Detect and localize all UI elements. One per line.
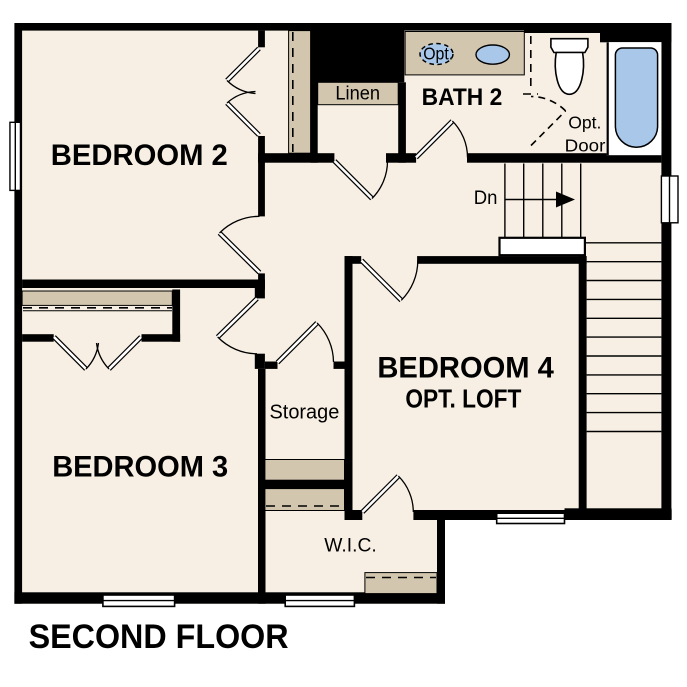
svg-text:Opt.: Opt.	[568, 112, 601, 132]
svg-text:Door: Door	[565, 135, 606, 155]
svg-text:Storage: Storage	[270, 401, 340, 423]
svg-text:W.I.C.: W.I.C.	[324, 535, 376, 557]
svg-text:Opt.: Opt.	[423, 44, 453, 64]
svg-text:BEDROOM 4: BEDROOM 4	[377, 352, 554, 385]
svg-text:BEDROOM 3: BEDROOM 3	[52, 451, 228, 484]
svg-text:Linen: Linen	[335, 83, 380, 105]
svg-text:SECOND FLOOR: SECOND FLOOR	[29, 618, 289, 656]
svg-text:BATH 2: BATH 2	[422, 84, 503, 111]
svg-text:Dn: Dn	[474, 187, 498, 209]
svg-text:BEDROOM 2: BEDROOM 2	[51, 139, 228, 172]
svg-text:OPT. LOFT: OPT. LOFT	[405, 386, 521, 414]
